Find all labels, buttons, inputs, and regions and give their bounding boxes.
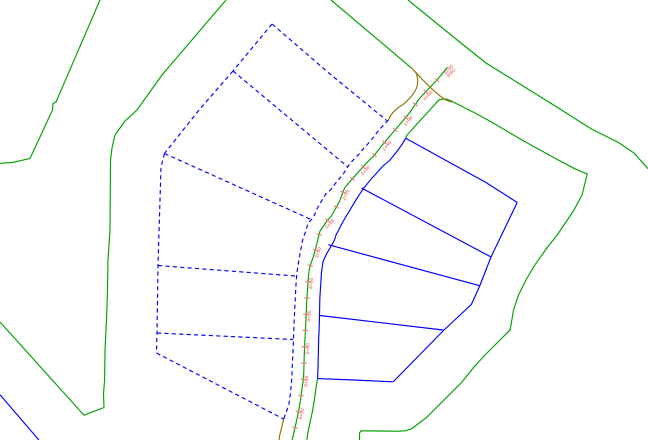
svg-text:5+00: 5+00	[305, 343, 312, 355]
svg-text:2+00: 2+00	[360, 164, 372, 177]
svg-text:4+50: 4+50	[306, 310, 312, 322]
svg-text:0+50: 0+50	[422, 90, 434, 102]
svg-text:5+50: 5+50	[304, 375, 311, 387]
svg-text:6+00: 6+00	[298, 408, 306, 420]
svg-text:2+50: 2+50	[342, 189, 352, 202]
svg-text:4+00: 4+00	[308, 277, 315, 289]
